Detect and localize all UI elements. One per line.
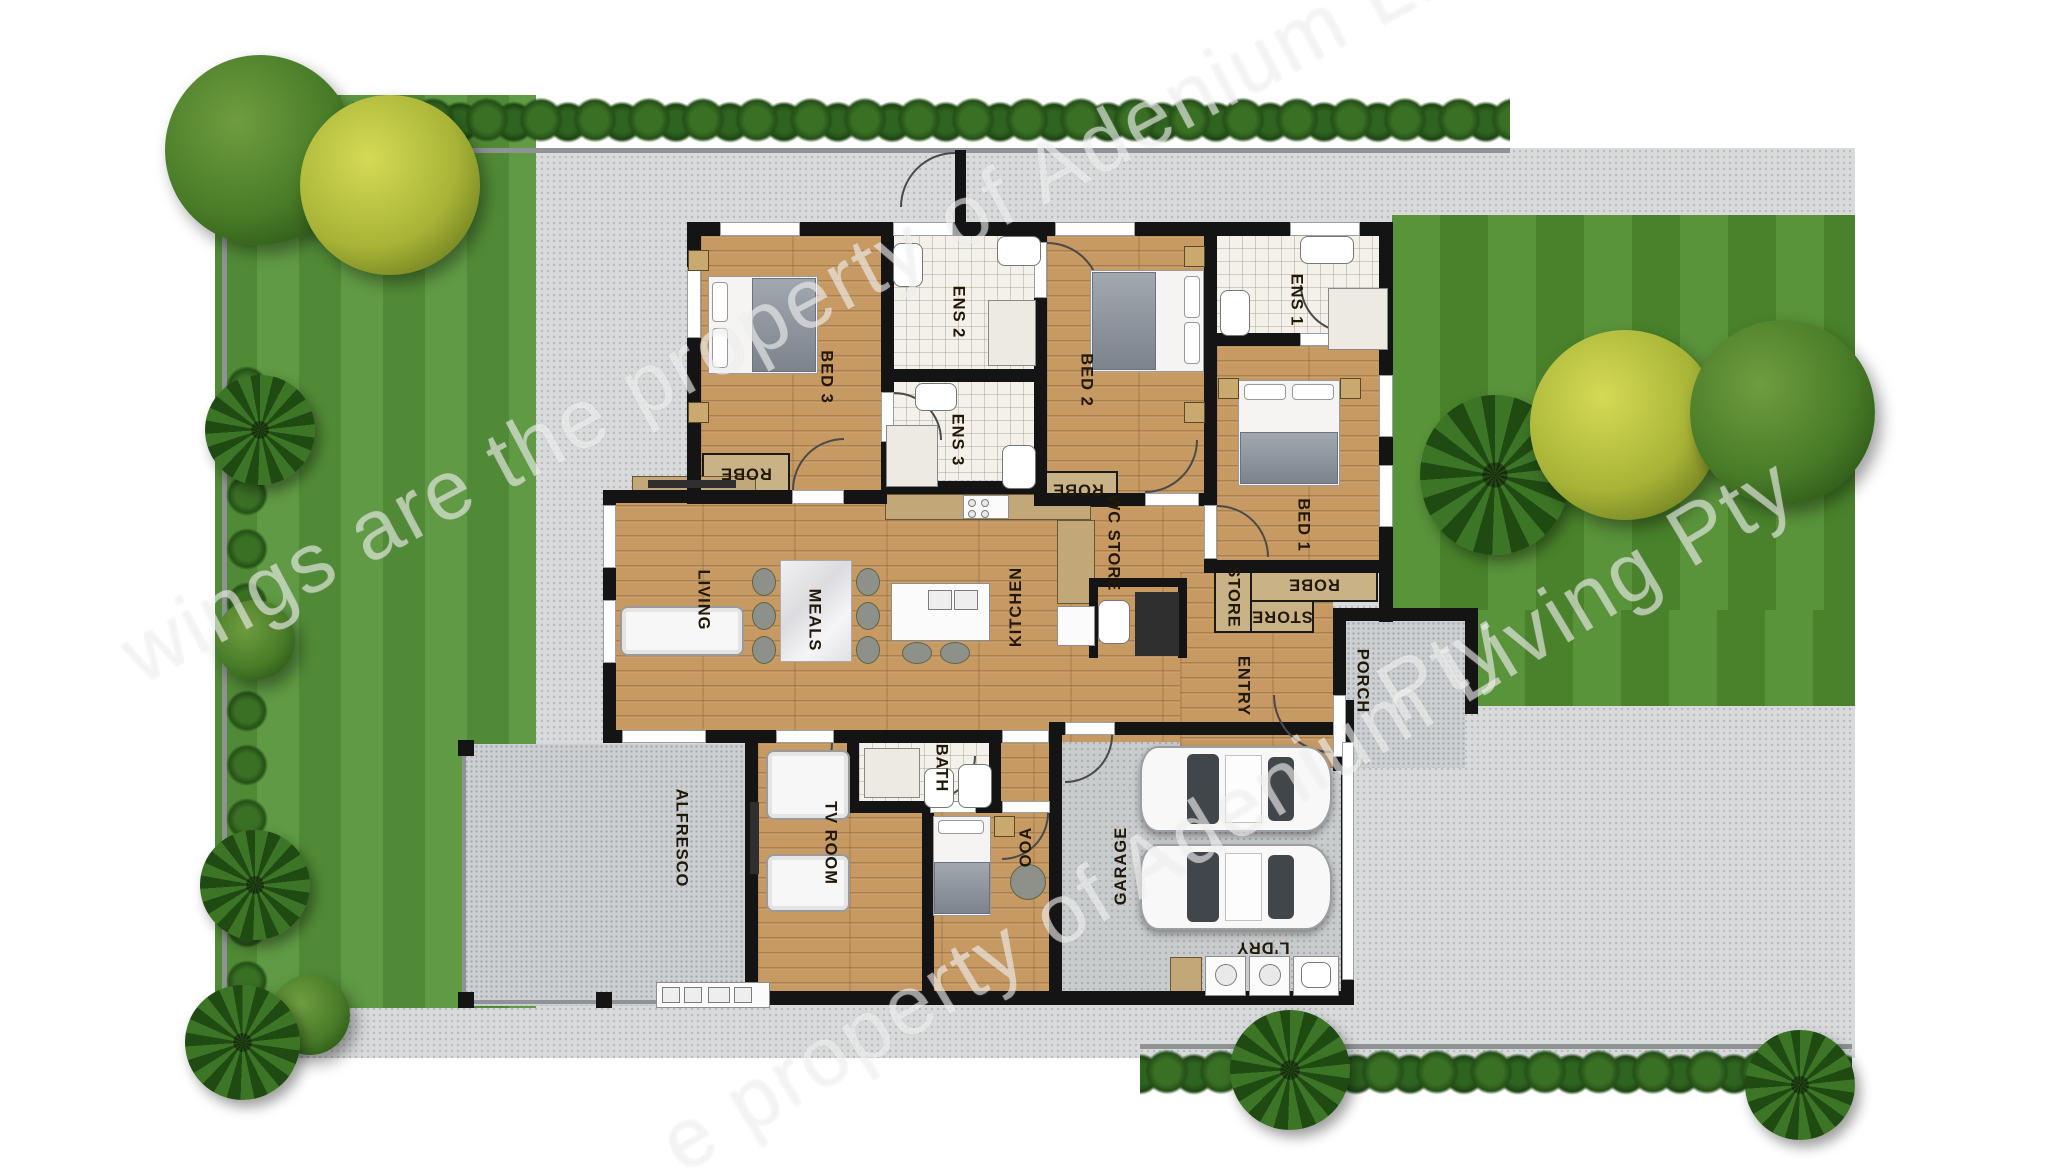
room-label-store-wide: STORE (1251, 608, 1313, 625)
ens2-shower (988, 300, 1036, 366)
wall (881, 369, 1047, 382)
door-opening (776, 730, 834, 743)
island-sink-bowl (928, 590, 952, 610)
cooktop-burner (981, 499, 989, 507)
palm-tree (205, 375, 315, 485)
laundry-cabinet (1170, 957, 1202, 995)
ens3-vanity (915, 383, 957, 411)
floor-plan-scene: BED 3ENS 2ENS 3BED 2ENS 1BED 1LIVINGMEAL… (0, 0, 2048, 1175)
bath-vanity (958, 764, 992, 808)
door-opening (792, 490, 844, 504)
living-sofa (620, 606, 744, 656)
bed2-pillow (1184, 276, 1200, 318)
wall (458, 992, 474, 1008)
palm-tree (185, 985, 300, 1100)
room-label-robe-bed3: ROBE (720, 465, 772, 482)
room-label-kitchen: KITCHEN (1008, 567, 1025, 647)
ens1-vanity (1300, 236, 1354, 264)
room-label-store-tall: STORE (1225, 566, 1242, 628)
door-opening (1002, 801, 1050, 813)
wall (603, 490, 700, 503)
room-label-robe-bed1: ROBE (1288, 576, 1340, 593)
bedside-table (1184, 246, 1205, 267)
bed2-pillow (1184, 322, 1200, 364)
ens3-toilet (1002, 445, 1036, 489)
kitchen-stool (902, 642, 932, 664)
wall (458, 740, 474, 756)
hedge-row-front (352, 88, 1510, 148)
sliding-door (622, 730, 706, 743)
bedside-table (994, 816, 1015, 837)
dining-chair (752, 636, 776, 664)
dining-chair (752, 602, 776, 630)
room-label-ens-1: ENS 1 (1288, 274, 1305, 327)
ens1-shower (1328, 288, 1388, 350)
room-label-bath: BATH (933, 744, 950, 793)
cooktop-burner (968, 510, 976, 518)
room-label-entry: ENTRY (1235, 656, 1252, 716)
door-opening (1204, 505, 1217, 559)
alfresco-edge-left (462, 748, 466, 1000)
wc-toilet (1098, 600, 1130, 644)
room-label-bed-2: BED 2 (1078, 353, 1095, 407)
room-label-alfresco: ALFRESCO (673, 789, 690, 888)
bedside-table (688, 250, 709, 271)
room-label-living: LIVING (695, 569, 712, 630)
palm-tree (1230, 1010, 1350, 1130)
bed1-pillow (1244, 384, 1286, 400)
bed1-blanket (1240, 432, 1338, 484)
bath-shower (864, 748, 920, 798)
washer-drum (1215, 964, 1237, 986)
room-label-bed-1: BED 1 (1295, 498, 1312, 552)
ens1-toilet (1220, 290, 1250, 336)
window (720, 222, 800, 236)
bed1-pillow (1292, 384, 1334, 400)
ooa-pillow (938, 820, 984, 834)
palm-tree (1745, 1030, 1855, 1140)
dining-chair (856, 568, 880, 596)
car-rear-window (1268, 855, 1294, 919)
room-label-meals: MEALS (806, 589, 823, 652)
cooktop-burner (981, 510, 989, 518)
bedside-table (1340, 378, 1361, 399)
window (603, 505, 616, 568)
bbq-fixture (662, 987, 680, 1003)
room-label-bed-3: BED 3 (818, 350, 835, 404)
wall (596, 992, 612, 1008)
room-label-ens-2: ENS 2 (950, 286, 967, 339)
room-label-wc-store: WC STORE (1105, 495, 1122, 592)
kitchen-stool (940, 642, 970, 664)
door-opening (1145, 493, 1199, 506)
wall (1178, 578, 1187, 658)
window (1379, 465, 1393, 527)
wall (687, 490, 887, 504)
door-opening (1065, 722, 1115, 735)
window (603, 600, 616, 663)
room-label-ldry: L'DRY (1236, 939, 1289, 956)
dining-chair (856, 636, 880, 664)
island-sink-bowl (954, 590, 978, 610)
bedside-table (1218, 378, 1239, 399)
bbq-fixture (684, 987, 702, 1003)
door-opening (1002, 730, 1049, 743)
tree (300, 95, 480, 275)
hall-shelf (1135, 592, 1179, 656)
dining-chair (856, 602, 880, 630)
fridge (1057, 606, 1095, 646)
window (1290, 222, 1360, 236)
alfresco-paving (464, 744, 752, 1006)
window (1055, 222, 1135, 236)
bbq-fixture (734, 987, 752, 1003)
window (1379, 375, 1393, 437)
room-label-tv-room: TV ROOM (822, 801, 839, 885)
tub-basin (1301, 962, 1331, 988)
room-label-ooa: OOA (1018, 827, 1035, 868)
bbq-fixture (708, 987, 730, 1003)
bed2-blanket (1092, 272, 1156, 370)
room-label-ens-3: ENS 3 (949, 414, 966, 467)
washer-drum (1259, 964, 1281, 986)
bedside-table (1184, 402, 1205, 423)
cooktop-burner (968, 499, 976, 507)
dining-chair (752, 568, 776, 596)
room-label-robe-bed2: ROBE (1052, 481, 1104, 498)
tv-screen-tv-room (750, 802, 759, 874)
ens3-shower (886, 425, 938, 487)
palm-tree (200, 830, 310, 940)
wall (1204, 222, 1217, 345)
front-fence-line (352, 148, 1510, 153)
